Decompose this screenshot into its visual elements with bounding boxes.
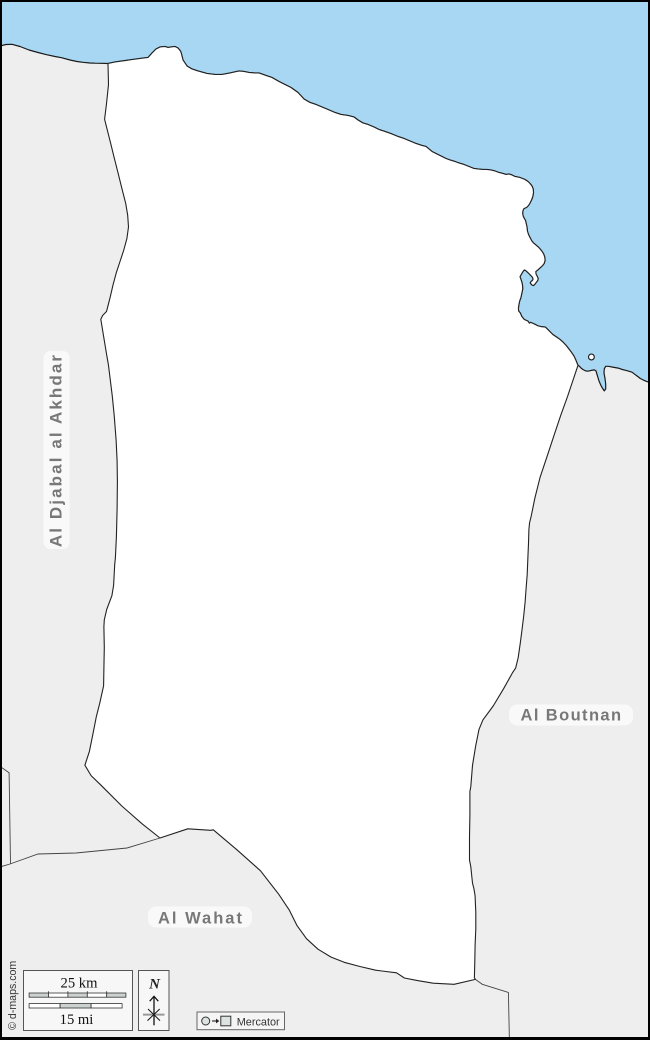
svg-text:Al Wahat: Al Wahat (158, 910, 244, 928)
svg-text:Al Boutnan: Al Boutnan (521, 707, 623, 725)
svg-text:Al Djabal al Akhdar: Al Djabal al Akhdar (47, 353, 66, 547)
svg-text:15 mi: 15 mi (60, 1012, 94, 1028)
svg-text:25 km: 25 km (61, 975, 99, 991)
svg-text:Mercator: Mercator (237, 1016, 280, 1028)
svg-text:N: N (148, 977, 161, 993)
svg-text:© d-maps.com: © d-maps.com (7, 961, 19, 1030)
